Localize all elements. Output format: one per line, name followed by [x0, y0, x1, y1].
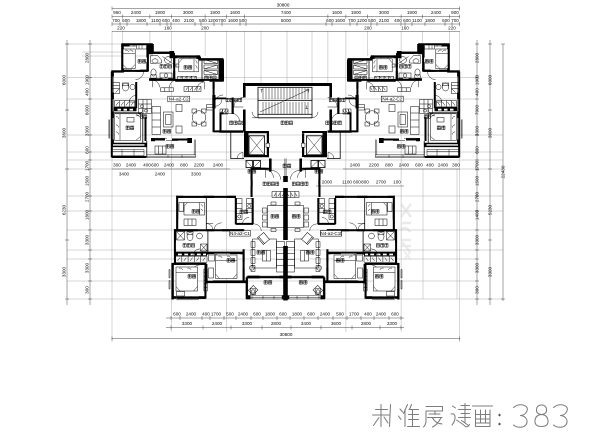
svg-text:1200: 1200: [357, 18, 368, 23]
svg-text:1900: 1900: [85, 74, 90, 85]
svg-text:2400: 2400: [431, 10, 442, 15]
svg-text:1500: 1500: [85, 175, 90, 186]
svg-text:2800: 2800: [271, 321, 282, 326]
svg-text:2700: 2700: [376, 180, 387, 185]
svg-text:2800: 2800: [475, 52, 480, 63]
svg-text:300: 300: [475, 286, 480, 294]
svg-text:800: 800: [385, 163, 393, 168]
svg-text:400: 400: [202, 312, 210, 317]
svg-text:1700: 1700: [85, 160, 90, 171]
svg-text:2400: 2400: [238, 312, 249, 317]
svg-text:N4-a2-C1f: N4-a2-C1f: [320, 231, 342, 236]
svg-text:3600: 3600: [488, 127, 493, 138]
svg-text:2800: 2800: [85, 52, 90, 63]
svg-text:2800: 2800: [361, 321, 372, 326]
svg-text:22430: 22430: [501, 165, 506, 178]
svg-text:1600: 1600: [335, 18, 346, 23]
svg-text:160: 160: [164, 25, 172, 30]
svg-text:3300: 3300: [475, 234, 480, 245]
svg-text:6000: 6000: [488, 74, 493, 85]
svg-text:3300: 3300: [475, 125, 480, 136]
svg-text:2400: 2400: [212, 321, 223, 326]
svg-text:2000: 2000: [322, 180, 333, 185]
svg-text:1700: 1700: [211, 312, 222, 317]
svg-text:500: 500: [336, 312, 344, 317]
svg-text:600: 600: [173, 312, 181, 317]
svg-text:600: 600: [307, 312, 315, 317]
svg-text:1100: 1100: [342, 180, 352, 185]
svg-text:1200: 1200: [208, 18, 219, 23]
svg-text:220: 220: [117, 25, 125, 30]
svg-text:600: 600: [442, 18, 450, 23]
svg-text:1500: 1500: [475, 175, 480, 186]
svg-text:400: 400: [143, 163, 151, 168]
svg-text:2400: 2400: [186, 312, 197, 317]
svg-text:160: 160: [401, 25, 409, 30]
svg-text:500: 500: [368, 18, 376, 23]
svg-text:3300: 3300: [182, 321, 193, 326]
svg-text:400: 400: [364, 312, 372, 317]
svg-text:N4-a2-C2: N4-a2-C2: [382, 97, 402, 102]
svg-text:1900: 1900: [155, 10, 166, 15]
svg-text:2100: 2100: [184, 18, 195, 23]
svg-text:5000: 5000: [281, 18, 292, 23]
svg-text:1700: 1700: [349, 312, 360, 317]
svg-text:600: 600: [475, 146, 480, 154]
svg-text:2200: 2200: [194, 163, 205, 168]
svg-text:3300: 3300: [387, 321, 398, 326]
svg-text:2400: 2400: [131, 10, 142, 15]
svg-text:2400: 2400: [376, 312, 387, 317]
svg-text:2400: 2400: [438, 163, 449, 168]
svg-text:6230: 6230: [62, 204, 67, 215]
svg-text:7400: 7400: [281, 10, 292, 15]
svg-text:700: 700: [112, 18, 120, 23]
svg-text:400: 400: [172, 18, 180, 23]
svg-text:900: 900: [451, 10, 459, 15]
svg-text:1600: 1600: [228, 18, 239, 23]
svg-text:500: 500: [226, 312, 234, 317]
svg-text:800: 800: [361, 180, 369, 185]
svg-text:600: 600: [279, 312, 287, 317]
svg-text:1600: 1600: [230, 10, 241, 15]
svg-text:3000: 3000: [379, 10, 390, 15]
svg-text:2400: 2400: [399, 163, 410, 168]
svg-text:3300: 3300: [488, 266, 493, 277]
svg-text:200: 200: [364, 25, 372, 30]
svg-text:7900: 7900: [475, 104, 480, 115]
svg-text:1800: 1800: [136, 18, 147, 23]
svg-text:600: 600: [403, 18, 411, 23]
svg-text:1600: 1600: [332, 10, 343, 15]
svg-text:600: 600: [253, 312, 261, 317]
svg-text:600: 600: [85, 146, 90, 154]
svg-text:2400: 2400: [126, 163, 137, 168]
svg-text:1800: 1800: [85, 209, 90, 220]
svg-text:3300: 3300: [85, 262, 90, 273]
svg-text:2400: 2400: [350, 163, 361, 168]
svg-text:3600: 3600: [62, 127, 67, 138]
svg-text:960: 960: [113, 10, 121, 15]
svg-text:700: 700: [451, 18, 459, 23]
svg-text:3300: 3300: [85, 125, 90, 136]
svg-text:2700: 2700: [85, 191, 90, 202]
svg-text:30800: 30800: [280, 332, 293, 337]
svg-text:3600: 3600: [331, 321, 342, 326]
svg-text:600: 600: [122, 18, 130, 23]
svg-text:400: 400: [85, 88, 90, 96]
svg-text:600: 600: [353, 180, 361, 185]
svg-text:N4-a2-C1: N4-a2-C1: [230, 231, 250, 236]
svg-text:6000: 6000: [62, 74, 67, 85]
svg-text:600: 600: [151, 163, 159, 168]
svg-text:300: 300: [85, 286, 90, 294]
svg-text:2400: 2400: [213, 163, 224, 168]
svg-text:2100: 2100: [379, 18, 390, 23]
svg-text:30800: 30800: [277, 3, 290, 8]
svg-text:600: 600: [391, 312, 399, 317]
svg-text:2200: 2200: [369, 163, 380, 168]
svg-text:300: 300: [452, 163, 460, 168]
svg-text:1900: 1900: [475, 74, 480, 85]
svg-text:700: 700: [348, 18, 356, 23]
svg-text:3300: 3300: [475, 262, 480, 273]
svg-text:2400: 2400: [320, 312, 331, 317]
svg-text:220: 220: [448, 25, 456, 30]
svg-text:200: 200: [201, 25, 209, 30]
svg-text:2400: 2400: [164, 163, 175, 168]
svg-text:3300: 3300: [242, 321, 253, 326]
svg-text:400: 400: [426, 163, 434, 168]
svg-text:1700: 1700: [475, 160, 480, 171]
svg-text:3400: 3400: [119, 172, 130, 177]
svg-text:5230: 5230: [488, 204, 493, 215]
svg-text:3300: 3300: [62, 266, 67, 277]
svg-text:1900: 1900: [351, 10, 362, 15]
svg-text:2700: 2700: [475, 191, 480, 202]
svg-text:800: 800: [180, 163, 188, 168]
svg-text:6000: 6000: [85, 104, 90, 115]
svg-text:2400: 2400: [155, 172, 166, 177]
svg-text:1800: 1800: [292, 312, 303, 317]
svg-text:1400: 1400: [475, 209, 480, 220]
svg-text:1800: 1800: [265, 312, 276, 317]
svg-text:600: 600: [326, 18, 334, 23]
svg-text:500: 500: [199, 18, 207, 23]
svg-text:3000: 3000: [183, 10, 194, 15]
svg-text:1900: 1900: [210, 10, 221, 15]
svg-text:1800: 1800: [425, 18, 436, 23]
svg-text:600: 600: [415, 163, 423, 168]
svg-text:600: 600: [162, 18, 170, 23]
svg-text:100: 100: [393, 180, 401, 185]
svg-text:300: 300: [113, 163, 121, 168]
svg-text:1900: 1900: [407, 10, 418, 15]
svg-text:3300: 3300: [191, 172, 202, 177]
svg-text:N4-a2-C2: N4-a2-C2: [169, 97, 189, 102]
svg-text:400: 400: [475, 88, 480, 96]
svg-text:1100: 1100: [412, 18, 422, 23]
svg-text:3400: 3400: [301, 321, 312, 326]
svg-text:3300: 3300: [85, 234, 90, 245]
